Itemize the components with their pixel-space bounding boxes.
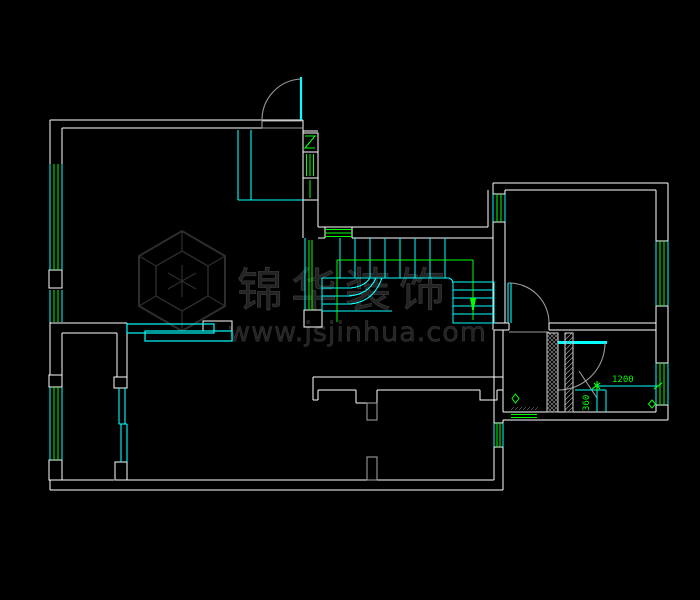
entry-lintel — [262, 121, 303, 128]
closet-lines — [238, 130, 303, 200]
sliding-door — [127, 324, 232, 341]
floor-plan-svg: 锦华装饰 www.jsjinhua.com — [0, 0, 700, 600]
hexagon-cube-logo-icon — [139, 231, 225, 331]
bedroom-door — [508, 283, 549, 323]
dimension-360-label: 360 — [582, 395, 592, 411]
watermark-url-text: www.jsjinhua.com — [228, 317, 487, 348]
dimension-1200-label: 1200 — [612, 375, 634, 385]
watermark-brand-text: 锦华装饰 — [237, 263, 453, 317]
flue-z-icon — [305, 136, 315, 148]
floor-drain-icon — [649, 400, 656, 408]
screen-partition — [119, 388, 127, 462]
floor-plan-image: 锦华装饰 www.jsjinhua.com — [0, 0, 700, 600]
hatched-walls — [547, 333, 573, 412]
column-bar — [367, 403, 377, 420]
floor-drain-icon — [512, 394, 519, 403]
column-bar — [367, 457, 377, 480]
entry-door — [262, 77, 301, 120]
